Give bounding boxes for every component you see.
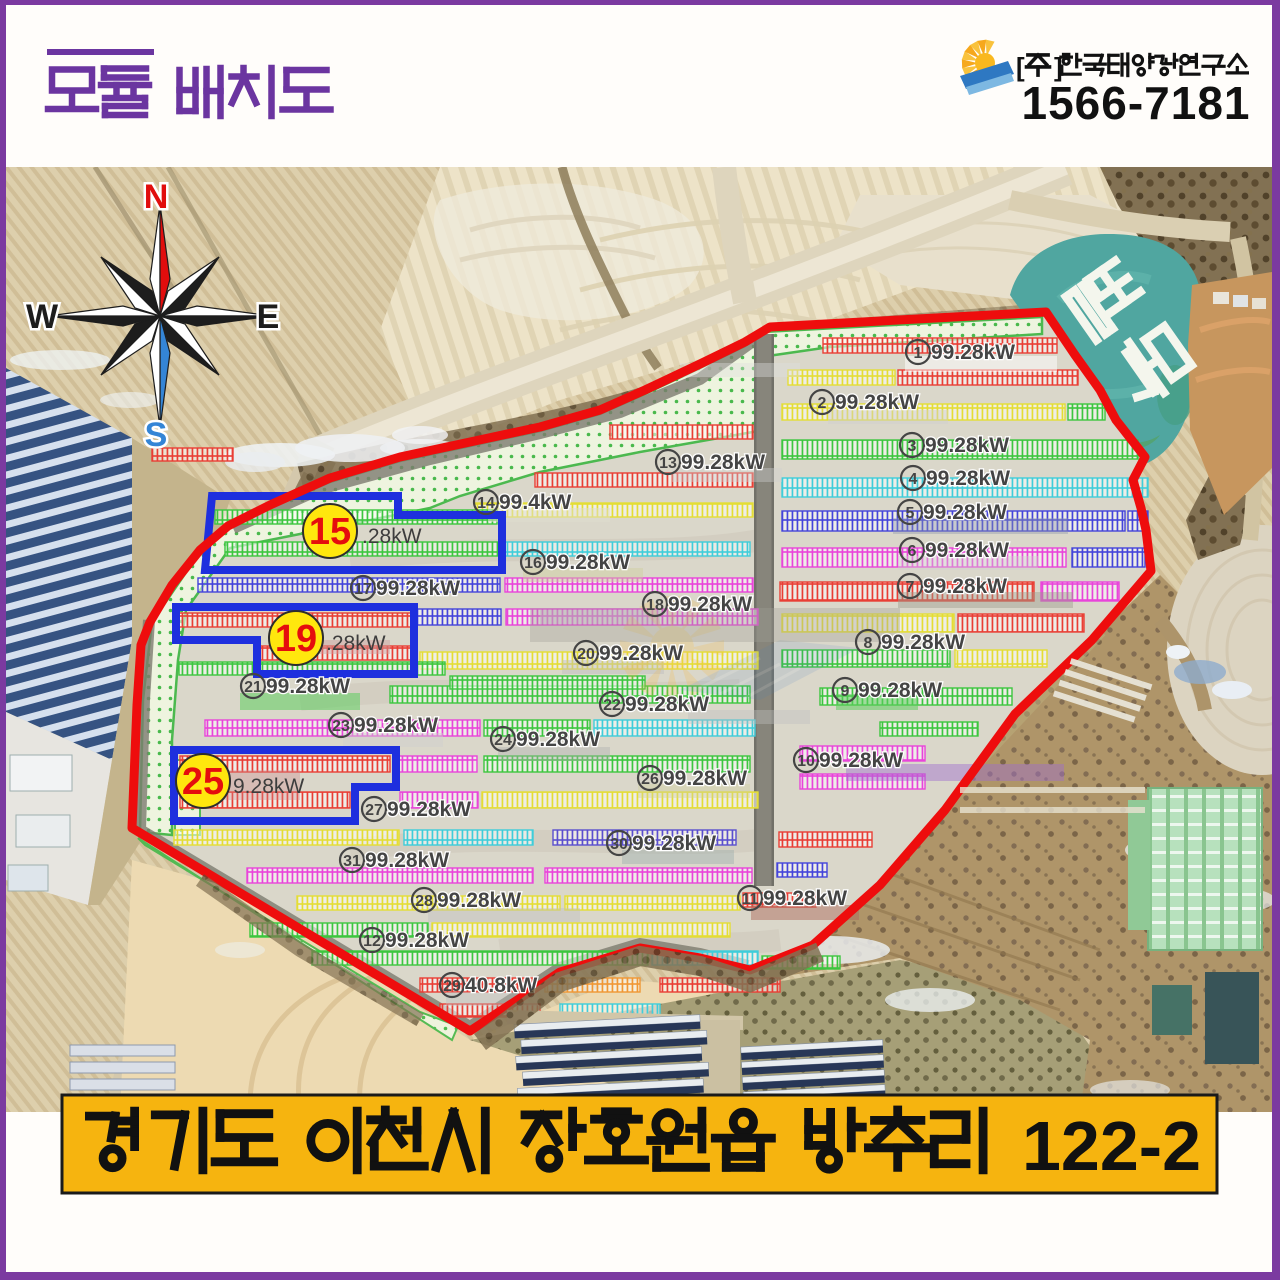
- svg-text:1566-7181: 1566-7181: [1022, 77, 1251, 129]
- svg-text:122-2: 122-2: [1022, 1107, 1201, 1185]
